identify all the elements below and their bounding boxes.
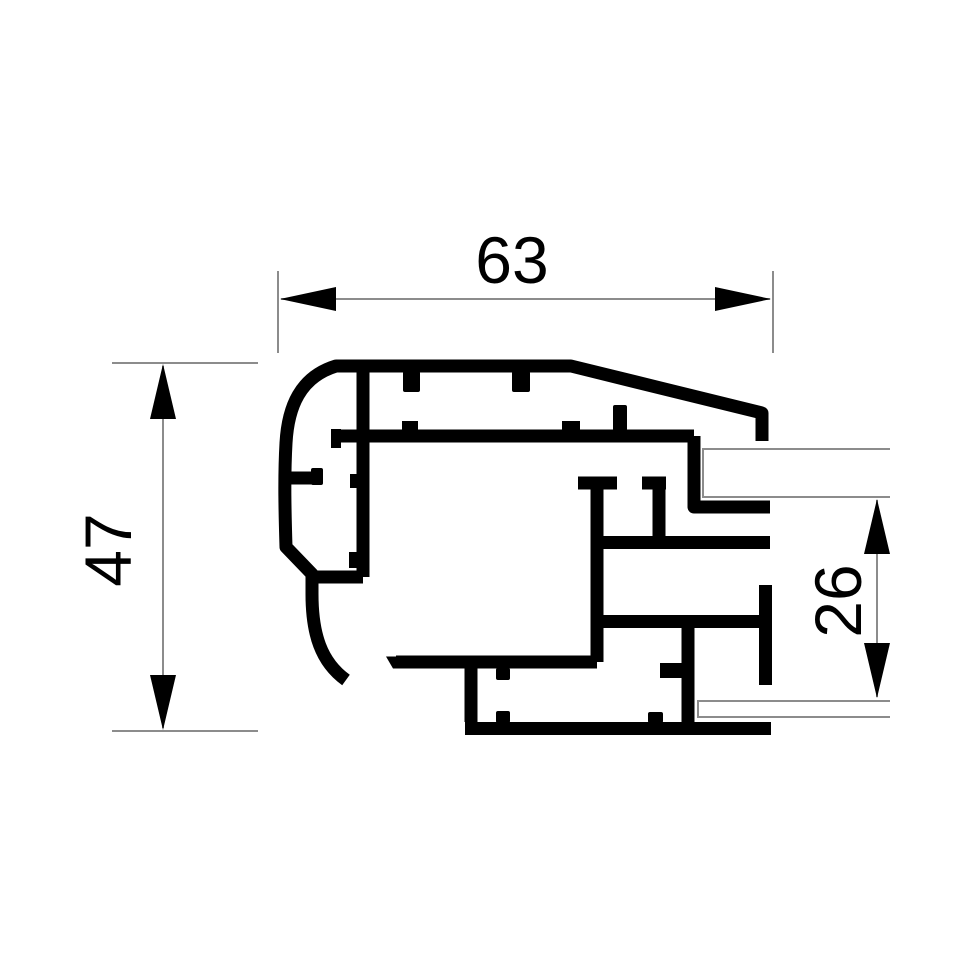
- inner-wall-tab-1: [402, 421, 418, 431]
- inner-wall-stub: [613, 405, 627, 431]
- dim-47-label: 47: [71, 513, 145, 586]
- dim-26-label: 26: [801, 564, 875, 637]
- technical-drawing-page: 63 47 26: [0, 0, 962, 962]
- arrowhead-63-right: [715, 287, 771, 311]
- center-web-tab: [660, 663, 682, 678]
- profile-screw-channel-1: [578, 483, 617, 662]
- bottom-channel-tab-down: [496, 668, 510, 680]
- bottom-wall-chamfer: [386, 657, 398, 669]
- dim-63-label: 63: [475, 223, 548, 297]
- profile-cross-section-drawing: 63 47 26: [0, 0, 962, 962]
- inner-wall-end-cap: [331, 429, 341, 448]
- snap-lug-tip: [311, 468, 323, 485]
- arrowhead-26-bottom: [864, 643, 890, 698]
- bottom-channel-tab-up-1: [496, 711, 510, 723]
- arrowhead-26-top: [864, 499, 890, 554]
- profile-walls: [285, 366, 771, 729]
- top-wall-tab-1: [403, 371, 420, 392]
- glass-panel-upper: [703, 449, 890, 497]
- top-wall-tab-2: [512, 371, 530, 392]
- glass-panel-lower: [698, 701, 890, 717]
- arrowhead-47-bottom: [150, 675, 176, 730]
- left-web-detent-2: [349, 552, 358, 568]
- inner-wall-tab-2: [562, 421, 580, 431]
- bottom-channel-tab-up-2: [648, 712, 663, 723]
- arrowhead-63-left: [280, 287, 336, 311]
- arrowhead-47-top: [150, 364, 176, 419]
- left-web-detent-1: [350, 474, 358, 488]
